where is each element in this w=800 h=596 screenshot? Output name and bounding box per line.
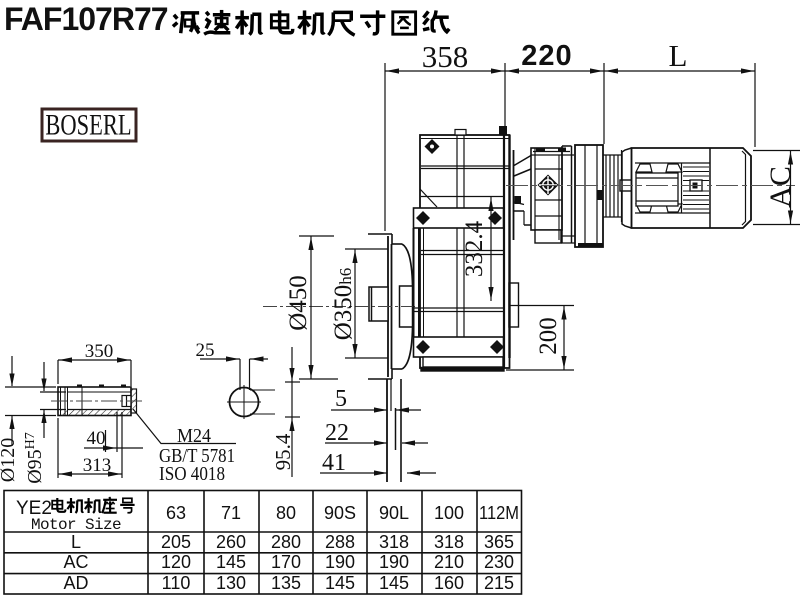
svg-text:190: 190 <box>325 552 355 572</box>
svg-text:220: 220 <box>521 40 572 72</box>
svg-text:112M: 112M <box>479 503 519 523</box>
svg-text:40: 40 <box>87 428 106 449</box>
svg-text:Ø120: Ø120 <box>0 438 19 482</box>
svg-text:71: 71 <box>221 503 241 523</box>
svg-text:288: 288 <box>325 532 355 552</box>
svg-text:AC: AC <box>764 166 797 208</box>
svg-text:365: 365 <box>484 532 514 552</box>
svg-text:ISO 4018: ISO 4018 <box>159 463 225 485</box>
svg-text:BOSERL: BOSERL <box>45 107 131 141</box>
svg-text:130: 130 <box>216 573 246 593</box>
svg-text:63: 63 <box>166 503 186 523</box>
svg-text:350: 350 <box>85 341 114 362</box>
svg-text:95.4: 95.4 <box>271 433 295 470</box>
svg-text:M24: M24 <box>177 425 211 447</box>
svg-text:318: 318 <box>379 532 409 552</box>
svg-text:120: 120 <box>161 552 191 572</box>
svg-text:190: 190 <box>379 552 409 572</box>
svg-text:145: 145 <box>325 573 355 593</box>
svg-text:145: 145 <box>379 573 409 593</box>
svg-text:FAF107R77: FAF107R77 <box>4 1 168 37</box>
svg-text:200: 200 <box>535 317 562 355</box>
svg-text:230: 230 <box>484 552 514 572</box>
svg-text:AD: AD <box>63 573 88 593</box>
svg-text:41: 41 <box>322 450 346 476</box>
svg-text:100: 100 <box>434 503 464 523</box>
svg-text:313: 313 <box>83 455 112 476</box>
svg-text:145: 145 <box>216 552 246 572</box>
svg-text:280: 280 <box>271 532 301 552</box>
svg-text:205: 205 <box>161 532 191 552</box>
svg-text:210: 210 <box>434 552 464 572</box>
svg-text:L: L <box>71 532 81 552</box>
svg-text:170: 170 <box>271 552 301 572</box>
svg-text:80: 80 <box>276 503 296 523</box>
svg-text:90L: 90L <box>379 503 409 523</box>
svg-text:5: 5 <box>335 386 347 412</box>
svg-text:22: 22 <box>325 420 349 446</box>
svg-text:25: 25 <box>196 340 215 361</box>
svg-text:90S: 90S <box>324 503 356 523</box>
svg-text:Ø450: Ø450 <box>285 275 312 331</box>
svg-text:260: 260 <box>216 532 246 552</box>
svg-text:AC: AC <box>63 552 88 572</box>
svg-text:318: 318 <box>434 532 464 552</box>
svg-text:358: 358 <box>422 39 469 74</box>
svg-text:L: L <box>669 38 688 73</box>
svg-text:160: 160 <box>434 573 464 593</box>
svg-text:110: 110 <box>162 573 191 593</box>
svg-text:215: 215 <box>484 573 514 593</box>
svg-text:332.4: 332.4 <box>461 220 488 277</box>
svg-text:135: 135 <box>271 573 301 593</box>
